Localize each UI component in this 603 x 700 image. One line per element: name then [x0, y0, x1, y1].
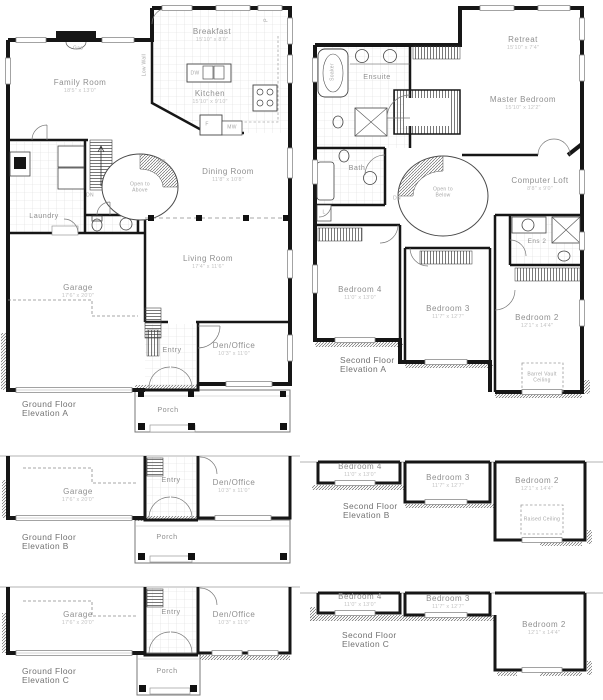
caption-ground-floor-b: Ground Floor Elevation B [22, 533, 76, 551]
room-name: Retreat [507, 36, 539, 44]
room-name: Ensuite [363, 73, 390, 81]
annotation-raised-ceiling: Raised Ceiling [524, 517, 560, 523]
room-label-garage: Garage 17'6" x 20'0" [62, 611, 94, 627]
room-dims: 15'10" x 8'0" [193, 37, 231, 44]
annotation-dn: DN [86, 193, 94, 199]
caption-line: Elevation C [342, 640, 397, 649]
room-name: Ens 2 [528, 238, 547, 246]
room-dims: 11'0" x 13'0" [338, 602, 382, 609]
room-name: Garage [62, 611, 94, 619]
room-label-family-room: Family Room 18'5" x 13'0" [54, 79, 107, 95]
room-name: Bath [349, 164, 366, 172]
room-dims: 17'6" x 20'0" [62, 293, 94, 300]
room-label-ens-2: Ens 2 [528, 238, 547, 246]
annotation-up: UP [158, 160, 166, 166]
room-name: Dining Room [202, 168, 254, 176]
room-dims: 11'0" x 13'0" [338, 472, 382, 479]
room-name: Entry [161, 608, 180, 616]
room-name: Den/Office [213, 611, 256, 619]
room-name: Laundry [29, 212, 58, 220]
annotation-barrel-vault-ceiling: Barrel Vault Ceiling [524, 373, 560, 384]
room-label-entry: Entry [161, 476, 180, 484]
caption-second-floor-c: Second Floor Elevation C [342, 631, 397, 649]
room-label-bedroom-4: Bedroom 4 11'0" x 13'0" [338, 593, 382, 609]
room-name: Bedroom 4 [338, 593, 382, 601]
caption-ground-floor-a: Ground Floor Elevation A [22, 400, 76, 418]
caption-line: Elevation A [340, 365, 395, 374]
room-dims: 10'3" x 11'0" [213, 488, 256, 495]
room-label-dining-room: Dining Room 11'8" x 10'8" [202, 168, 254, 184]
annotation-open-to-below: Open to Below [428, 188, 458, 199]
room-dims: 10'3" x 11'0" [213, 620, 256, 627]
caption-line: Elevation A [22, 409, 76, 418]
room-name: Garage [62, 488, 94, 496]
room-label-porch: Porch [156, 667, 177, 675]
room-name: Porch [156, 667, 177, 675]
room-label-porch: Porch [156, 533, 177, 541]
annotation-soaker: Soaker [330, 63, 336, 81]
room-name: Bedroom 2 [522, 621, 566, 629]
plan-second-floor-a: Retreat 15'10" x 7'4" Master Bedroom 15'… [300, 0, 603, 452]
room-label-breakfast: Breakfast 15'10" x 8'0" [193, 28, 231, 44]
room-label-den-office: Den/Office 10'3" x 11'0" [213, 342, 256, 358]
room-label-laundry: Laundry [29, 212, 58, 220]
room-dims: 8'8" x 9'0" [511, 186, 568, 193]
room-dims: 17'4" x 11'6" [183, 264, 233, 271]
room-dims: 12'1" x 14'4" [522, 630, 566, 637]
room-name: Master Bedroom [490, 96, 556, 104]
room-name: Computer Loft [511, 177, 568, 185]
room-name: Bedroom 4 [338, 463, 382, 471]
room-label-ensuite: Ensuite [363, 73, 390, 81]
annotation-dn: DN [393, 196, 401, 202]
room-name: Kitchen [192, 90, 227, 98]
annotation-dishwasher: DW [191, 71, 200, 77]
room-dims: 11'0" x 13'0" [338, 295, 382, 302]
room-dims: 10'3" x 11'0" [213, 351, 256, 358]
room-label-bedroom-2: Bedroom 2 12'1" x 14'4" [522, 621, 566, 637]
caption-line: Elevation C [22, 676, 76, 685]
floorplan-drawing-second-a [300, 0, 603, 452]
room-dims: 18'5" x 13'0" [54, 88, 107, 95]
room-label-garage: Garage 17'6" x 20'0" [62, 284, 94, 300]
caption-second-floor-a: Second Floor Elevation A [340, 356, 395, 374]
room-dims: 12'1" x 14'4" [515, 323, 559, 330]
room-name: Bedroom 3 [426, 305, 470, 313]
room-label-living-room: Living Room 17'4" x 11'6" [183, 255, 233, 271]
annotation-linen: L [322, 210, 325, 216]
room-label-bedroom-2: Bedroom 2 12'1" x 14'4" [515, 477, 559, 493]
floorplan-sheet: Family Room 18'5" x 13'0" Breakfast 15'1… [0, 0, 603, 700]
room-label-master-bedroom: Master Bedroom 15'10" x 12'2" [490, 96, 556, 112]
room-label-bedroom-3: Bedroom 3 11'7" x 12'7" [426, 474, 470, 490]
room-label-bedroom-4: Bedroom 4 11'0" x 13'0" [338, 463, 382, 479]
room-dims: 17'6" x 20'0" [62, 620, 94, 627]
room-name: Living Room [183, 255, 233, 263]
room-label-porch: Porch [157, 406, 178, 414]
room-dims: 11'7" x 12'7" [426, 314, 470, 321]
room-dims: 15'10" x 12'2" [490, 105, 556, 112]
room-dims: 11'8" x 10'8" [202, 177, 254, 184]
room-label-retreat: Retreat 15'10" x 7'4" [507, 36, 539, 52]
caption-line: Elevation B [343, 511, 398, 520]
room-dims: 15'10" x 9'10" [192, 99, 227, 106]
room-label-bedroom-4: Bedroom 4 11'0" x 13'0" [338, 286, 382, 302]
room-dims: 11'7" x 12'7" [426, 604, 470, 611]
room-name: Porch [156, 533, 177, 541]
room-label-bedroom-3: Bedroom 3 11'7" x 12'7" [426, 305, 470, 321]
annotation-microwave: MW [227, 125, 236, 131]
room-label-den-office: Den/Office 10'3" x 11'0" [213, 611, 256, 627]
floorplan-drawing-ground-a [0, 0, 300, 452]
room-label-kitchen: Kitchen 15'10" x 9'10" [192, 90, 227, 106]
plan-second-floor-b: Bedroom 4 11'0" x 13'0" Bedroom 3 11'7" … [300, 455, 603, 583]
room-label-bedroom-2: Bedroom 2 12'1" x 14'4" [515, 314, 559, 330]
room-name: Den/Office [213, 479, 256, 487]
caption-line: Elevation B [22, 542, 76, 551]
caption-second-floor-b: Second Floor Elevation B [343, 502, 398, 520]
room-name: Bedroom 3 [426, 595, 470, 603]
plan-second-floor-c: Bedroom 4 11'0" x 13'0" Bedroom 3 11'7" … [300, 583, 603, 700]
plan-ground-floor-b: Garage 17'6" x 20'0" Entry Den/Office 10… [0, 455, 300, 583]
annotation-open-to-above: Open to Above [125, 183, 155, 194]
room-dims: 15'10" x 7'4" [507, 45, 539, 52]
room-name: Bedroom 2 [515, 314, 559, 322]
room-name: Family Room [54, 79, 107, 87]
room-name: Bedroom 2 [515, 477, 559, 485]
plan-ground-floor-a: Family Room 18'5" x 13'0" Breakfast 15'1… [0, 0, 300, 452]
caption-ground-floor-c: Ground Floor Elevation C [22, 667, 76, 685]
room-label-computer-loft: Computer Loft 8'8" x 9'0" [511, 177, 568, 193]
room-name: Den/Office [213, 342, 256, 350]
floorplan-drawing-ground-b [0, 455, 300, 583]
room-dims: 17'6" x 20'0" [62, 497, 94, 504]
plan-ground-floor-c: Garage 17'6" x 20'0" Entry Den/Office 10… [0, 583, 300, 700]
room-label-entry: Entry [161, 608, 180, 616]
room-name: Porch [157, 406, 178, 414]
room-label-den-office: Den/Office 10'3" x 11'0" [213, 479, 256, 495]
room-label-bath: Bath [349, 164, 366, 172]
annotation-gas: Gas [73, 46, 83, 52]
room-name: Bedroom 3 [426, 474, 470, 482]
room-name: Bedroom 4 [338, 286, 382, 294]
room-name: Breakfast [193, 28, 231, 36]
annotation-low-wall: Low Wall [142, 54, 148, 77]
room-name: Entry [162, 346, 181, 354]
room-label-bedroom-3: Bedroom 3 11'7" x 12'7" [426, 595, 470, 611]
room-name: Garage [62, 284, 94, 292]
room-dims: 11'7" x 12'7" [426, 483, 470, 490]
annotation-fridge: F [205, 122, 208, 128]
room-label-garage: Garage 17'6" x 20'0" [62, 488, 94, 504]
room-name: Entry [161, 476, 180, 484]
annotation-pantry: P [264, 18, 270, 22]
room-dims: 12'1" x 14'4" [515, 486, 559, 493]
room-label-entry: Entry [162, 346, 181, 354]
